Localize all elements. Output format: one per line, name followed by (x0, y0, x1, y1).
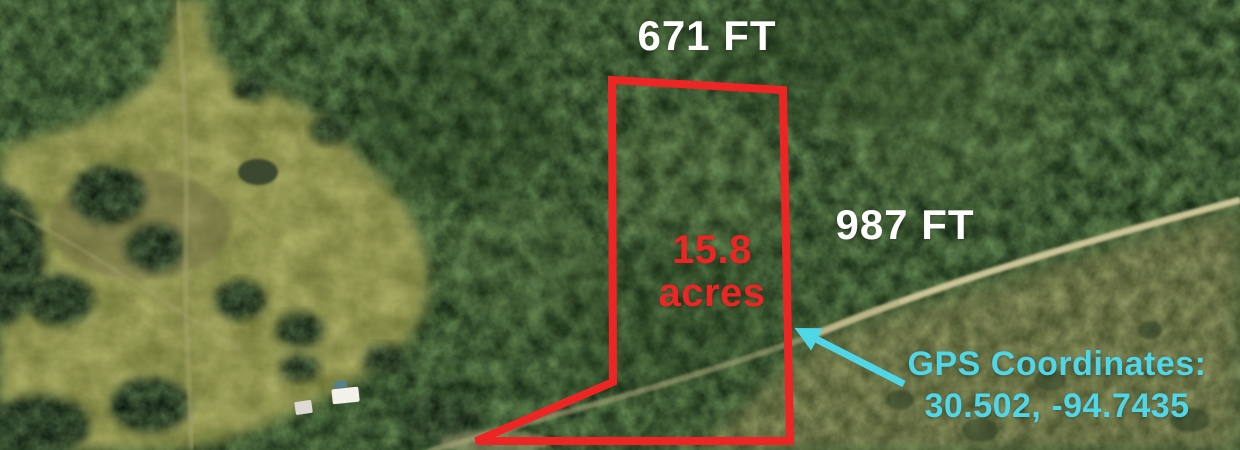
gps-arrow-icon (812, 337, 904, 384)
acreage-label: 15.8 acres (658, 229, 765, 315)
top-edge-length-label: 671 FT (637, 15, 776, 57)
satellite-map: 671 FT 987 FT 15.8 acres GPS Coordinates… (0, 0, 1240, 450)
gps-coordinates-block: GPS Coordinates: 30.502, -94.7435 (908, 343, 1207, 427)
right-edge-length-label: 987 FT (835, 204, 974, 246)
gps-coordinates-title: GPS Coordinates: (908, 343, 1207, 385)
acreage-unit: acres (658, 272, 765, 315)
gps-coordinates-value: 30.502, -94.7435 (908, 385, 1207, 427)
acreage-value: 15.8 (658, 229, 765, 272)
